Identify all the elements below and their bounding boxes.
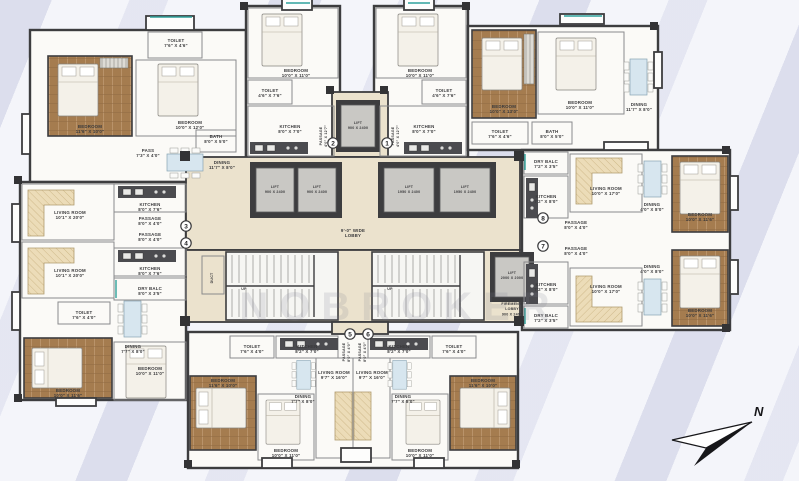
room-label: PASSAGE4'0" X 12'7"	[319, 125, 328, 147]
flat-number-8: 8	[538, 213, 548, 223]
kitchen-counter-icon	[250, 142, 308, 154]
room-label: DINING7'7" X 8'0"	[121, 344, 145, 354]
room-label: BEDROOM10'0" X 11'0"	[406, 448, 435, 458]
wardrobe-icon	[100, 58, 128, 68]
bed-icon	[262, 14, 302, 66]
bed-icon	[158, 64, 198, 116]
room-label: BEDROOM11'6" X 10'0"	[76, 124, 105, 134]
room-label: LIVING ROOM9'7" X 16'0"	[318, 370, 350, 380]
flat-number-1: 1	[382, 138, 392, 148]
room-label: BEDROOM10'0" X 11'6"	[686, 308, 715, 318]
room-label: LIVING ROOM10'0" X 17'0"	[590, 284, 622, 294]
room-label: TOILET7'6" X 4'0"	[72, 310, 96, 320]
flat-number-4: 4	[181, 238, 191, 248]
room-label: TOILET7'6" X 4'0"	[442, 344, 466, 354]
room-label: LIVING ROOM10'1" X 20'0"	[54, 268, 86, 278]
bed-icon	[482, 38, 522, 90]
room-label: KITCHEN7'2" X 8'0"	[534, 194, 558, 204]
floor-plan-canvas: 9'-0" WIDELOBBY LIFT900 X 2400 LIFT900 X…	[0, 0, 799, 481]
room-label: PASSAGE8'0" X 4'0"	[564, 246, 588, 256]
room-label: DINING4'0" X 8'0"	[640, 202, 664, 212]
svg-text:2: 2	[331, 140, 335, 147]
room-label: BEDROOM10'0" X 12'0"	[176, 120, 205, 130]
north-compass: N	[672, 404, 764, 466]
room-label: TOILET7'6" X 4'6"	[164, 38, 188, 48]
flat-number-6: 6	[363, 329, 373, 339]
room-label: LIVING ROOM10'0" X 17'0"	[590, 186, 622, 196]
svg-text:4: 4	[184, 240, 188, 247]
dining-table-icon	[118, 301, 147, 337]
room-label: KITCHEN8'2" X 7'0"	[295, 344, 319, 354]
room-label: PASSAGE8'0" X 4'0"	[138, 232, 162, 242]
room-label: DRY BALC8'0" X 3'5"	[138, 286, 163, 296]
dining-table-icon	[624, 59, 653, 95]
flat-number-2: 2	[328, 138, 338, 148]
room-label: BEDROOM11'6" X 10'0"	[209, 378, 238, 388]
room-label: TOILET7'6" X 4'0"	[240, 344, 264, 354]
bed-icon	[460, 388, 510, 428]
room-label: LIVING ROOM9'7" X 16'0"	[356, 370, 388, 380]
bed-icon	[556, 38, 596, 90]
room-label: BEDROOM10'0" X 11'6"	[54, 388, 83, 398]
wardrobe-icon	[524, 34, 534, 84]
room-label: TOILET4'6" X 7'6"	[258, 88, 282, 98]
north-label: N	[754, 404, 764, 419]
room-label: PASSAGE8'0" X 4'0"	[342, 342, 351, 362]
dining-table-icon	[638, 279, 667, 315]
svg-text:3: 3	[184, 223, 188, 230]
room-label: PASSAGE8'0" X 4'0"	[358, 342, 367, 362]
bed-icon	[398, 14, 438, 66]
floor-plan-svg: 9'-0" WIDELOBBY LIFT900 X 2400 LIFT900 X…	[0, 0, 799, 481]
dining-table-icon	[292, 360, 315, 389]
svg-text:7: 7	[541, 243, 545, 250]
room-label: BEDROOM10'0" X 11'0"	[136, 366, 165, 376]
bed-icon	[680, 256, 720, 308]
flat-number-3: 3	[181, 221, 191, 231]
flat-number-7: 7	[538, 241, 548, 251]
watermark-text: NOBROKER	[239, 285, 560, 329]
bed-icon	[406, 400, 440, 444]
sofa-icon	[354, 392, 371, 440]
room-label: BEDROOM10'0" X 11'6"	[686, 212, 715, 222]
bed-icon	[266, 400, 300, 444]
room-label: KITCHEN8'0" X 7'0"	[278, 124, 302, 134]
room-label: PASSAGE8'0" X 4'0"	[564, 220, 588, 230]
room-label: BEDROOM11'6" X 10'0"	[469, 378, 498, 388]
bed-icon	[680, 162, 720, 214]
room-label: KITCHEN8'0" X 7'0"	[412, 124, 436, 134]
svg-text:6: 6	[366, 331, 370, 338]
lift-bank-left	[250, 162, 342, 218]
compass-needle-white	[672, 422, 752, 448]
kitchen-counter-icon	[404, 142, 462, 154]
bed-icon	[32, 348, 82, 388]
sofa-icon	[335, 392, 352, 440]
bed-icon	[58, 64, 98, 116]
room-label: DRY BALC7'2" X 3'5"	[534, 159, 559, 169]
room-label: KITCHEN8'2" X 7'0"	[387, 344, 411, 354]
room-label: LIVING ROOM10'1" X 20'0"	[54, 210, 86, 220]
room-label: BEDROOM10'0" X 11'0"	[282, 68, 311, 78]
room-label: TOILET4'6" X 7'6"	[432, 88, 456, 98]
svg-text:8: 8	[541, 215, 545, 222]
dining-table-icon	[638, 161, 667, 197]
room-label: PASSAGE8'0" X 4'0"	[138, 216, 162, 226]
room-label: BEDROOM10'0" X 11'0"	[566, 100, 595, 110]
kitchen-counter-icon	[118, 186, 176, 198]
bed-icon	[196, 388, 246, 428]
svg-text:1: 1	[385, 140, 389, 147]
room-label: KITCHEN8'0" X 7'6"	[138, 202, 162, 212]
room-label: DUCT	[210, 272, 214, 283]
room-label: KITCHEN8'0" X 7'6"	[138, 266, 162, 276]
kitchen-counter-icon	[118, 250, 176, 262]
flat-number-5: 5	[345, 329, 355, 339]
room-label: TOILET7'6" X 4'6"	[488, 129, 512, 139]
room-label: DINING4'0" X 8'0"	[640, 264, 664, 274]
room-label: DINING7'7" X 8'0"	[291, 394, 315, 404]
svg-text:5: 5	[348, 331, 352, 338]
dining-table-icon	[388, 360, 411, 389]
room-label: BEDROOM10'0" X 11'0"	[272, 448, 301, 458]
room-label: BEDROOM10'0" X 11'0"	[406, 68, 435, 78]
room-label: DINING7'7" X 8'0"	[391, 394, 415, 404]
lift-bank-right	[378, 162, 496, 218]
room-label: BEDROOM10'0" X 13'0"	[490, 104, 519, 114]
